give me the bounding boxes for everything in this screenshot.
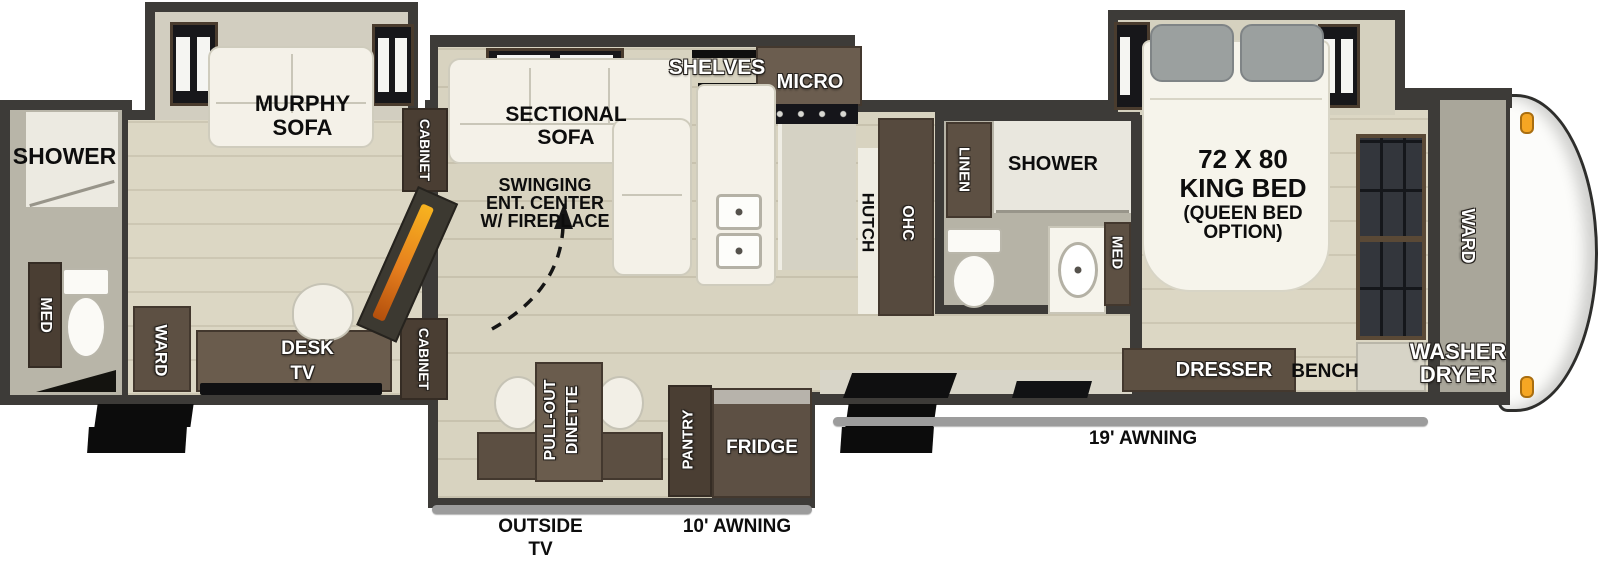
label-rear-shower: SHOWER [2, 145, 127, 168]
label-bed-option-line1: (QUEEN BED [1153, 204, 1333, 223]
kitchen-island [696, 84, 776, 286]
floorplan-canvas: SHOWER MED MURPHY SOFA WARD DESK TV CABI… [0, 0, 1600, 565]
island-sink-lower [716, 233, 762, 269]
label-pullout-line2: DINETTE [565, 355, 581, 485]
label-cabinet-bottom: CABINET [417, 314, 431, 404]
bed-blanket-seam [1150, 98, 1323, 100]
window-pane [1120, 37, 1130, 94]
mid-toilet-tank [946, 228, 1002, 254]
label-washer-line1: WASHER [1393, 341, 1523, 363]
label-outside-tv-line1: OUTSIDE [478, 517, 603, 536]
label-swing-line1: SWINGING [455, 176, 635, 194]
label-bench: BENCH [1284, 362, 1366, 381]
rear-toilet-tank [62, 268, 110, 296]
window-pane [176, 37, 189, 92]
label-tv: TV [245, 364, 360, 383]
label-rear-med: MED [37, 280, 53, 350]
label-micro: MICRO [762, 72, 858, 92]
label-cabinet-top: CABINET [418, 105, 432, 195]
rear-entry-step-upper [94, 404, 193, 427]
entry-inset-black [1012, 381, 1092, 398]
bed-pillow-right [1240, 24, 1324, 82]
main-entry-step-lower [840, 427, 934, 453]
mid-toilet-bowl [952, 254, 996, 308]
rear-entry-step-lower [87, 427, 187, 453]
office-desk-chair [292, 283, 354, 341]
window-pane [395, 38, 407, 91]
sink-drain [736, 209, 743, 216]
mid-vanity [1048, 226, 1106, 314]
awning-bar-10ft [432, 505, 812, 514]
label-mid-med: MED [1110, 218, 1125, 288]
label-ohc: OHC [899, 188, 915, 258]
bedroom-sliding-closet [1356, 134, 1426, 340]
office-tv-bar [200, 383, 382, 395]
label-awning-10: 10' AWNING [672, 517, 802, 536]
label-mid-shower: SHOWER [997, 154, 1109, 174]
bed-pillow-left [1150, 24, 1234, 82]
entry-cooktop-black [843, 373, 957, 398]
window-pane [378, 38, 390, 91]
sink-drain [1075, 267, 1082, 274]
awning-bar-19ft [833, 417, 1428, 426]
label-pullout-line1: PULL-OUT [543, 355, 559, 485]
label-desk: DESK [245, 339, 370, 358]
cap-marker-light-top [1520, 112, 1534, 134]
label-swing-line2: ENT. CENTER [455, 194, 635, 212]
label-murphy-sofa-line2: SOFA [210, 117, 395, 139]
label-bed-option-line2: OPTION) [1153, 223, 1333, 242]
range-cooktop [766, 104, 858, 124]
fridge-top-band [714, 390, 810, 404]
mid-shower-glass [996, 210, 1129, 213]
label-linen: LINEN [957, 135, 972, 205]
kitchen-counter [778, 124, 856, 270]
label-hutch: HUTCH [860, 183, 877, 263]
label-sectional-line2: SOFA [476, 127, 656, 148]
rear-toilet-bowl [66, 296, 106, 358]
label-pantry: PANTRY [681, 385, 696, 495]
label-office-ward: WARD [153, 311, 170, 391]
label-front-ward: WARD [1459, 191, 1477, 281]
vanity-sink [1058, 242, 1098, 298]
label-awning-19: 19' AWNING [1078, 429, 1208, 448]
label-outside-tv-line2: TV [478, 540, 603, 559]
label-bed-size: 72 X 80 [1153, 146, 1333, 172]
island-sink-upper [716, 194, 762, 230]
label-bed-type: KING BED [1153, 175, 1333, 201]
closet-door-divider [1360, 236, 1422, 242]
label-shelves: SHELVES [658, 57, 776, 78]
window-pane [1341, 39, 1353, 94]
label-fridge: FRIDGE [712, 438, 812, 457]
label-sectional-line1: SECTIONAL [476, 104, 656, 125]
label-dresser: DRESSER [1148, 360, 1300, 380]
label-swing-line3: W/ FIREPLACE [455, 212, 635, 230]
dinette-chair-right [596, 376, 644, 430]
label-washer-line2: DRYER [1393, 364, 1523, 386]
sink-drain [736, 248, 743, 255]
label-murphy-sofa-line1: MURPHY [210, 93, 395, 115]
